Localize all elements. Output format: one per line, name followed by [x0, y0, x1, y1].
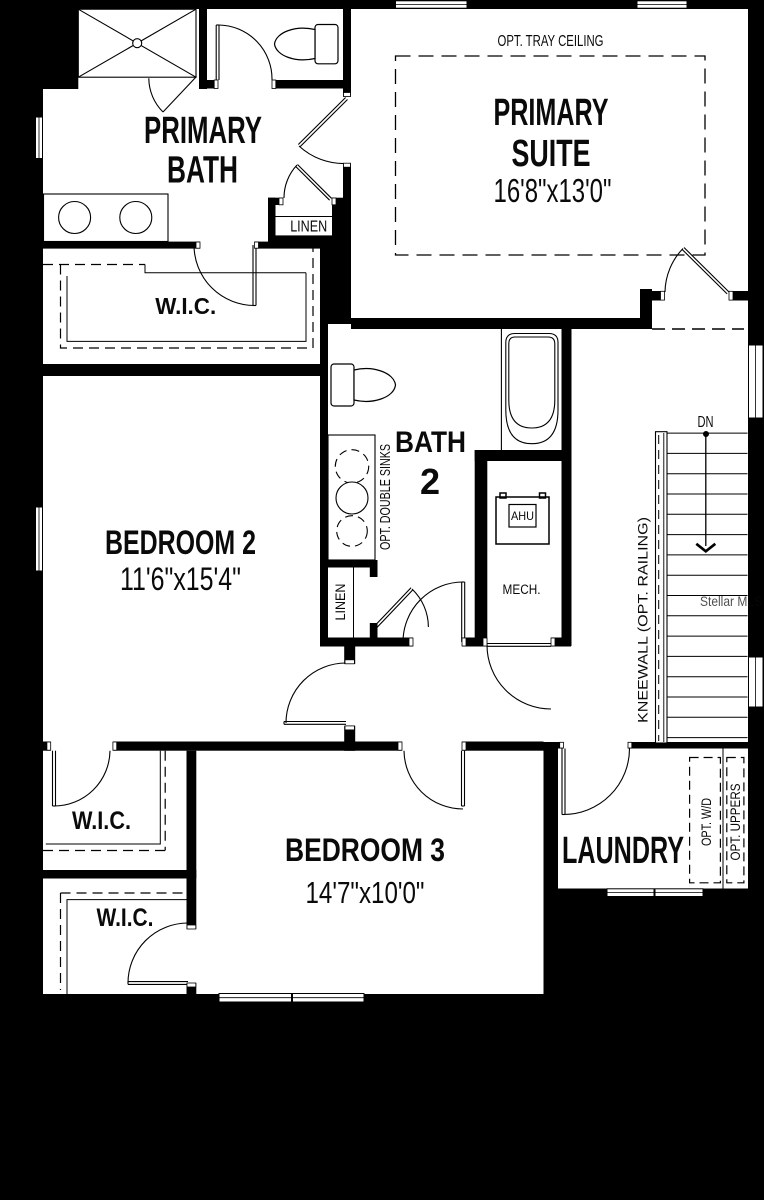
svg-text:OPT. W/D: OPT. W/D — [698, 798, 714, 846]
svg-text:W.I.C.: W.I.C. — [155, 293, 216, 319]
svg-text:LINEN: LINEN — [332, 584, 348, 621]
svg-text:Stellar MLS: Stellar MLS — [700, 593, 762, 609]
svg-text:BATH: BATH — [395, 426, 466, 459]
svg-text:KNEEWALL (OPT. RAILING): KNEEWALL (OPT. RAILING) — [636, 517, 651, 723]
svg-text:16'8"x13'0": 16'8"x13'0" — [494, 172, 612, 209]
svg-text:PRIMARY: PRIMARY — [144, 110, 262, 152]
svg-text:LAUNDRY: LAUNDRY — [562, 830, 684, 872]
svg-text:BATH: BATH — [167, 150, 238, 192]
svg-text:W.I.C.: W.I.C. — [97, 904, 154, 932]
svg-text:AHU: AHU — [511, 509, 534, 523]
svg-text:LINEN: LINEN — [290, 219, 327, 236]
svg-text:MECH.: MECH. — [503, 582, 541, 597]
svg-text:BEDROOM 2: BEDROOM 2 — [105, 524, 256, 562]
svg-text:OPT. DOUBLE SINKS: OPT. DOUBLE SINKS — [377, 444, 394, 550]
svg-text:14'7"x10'0": 14'7"x10'0" — [306, 875, 425, 910]
svg-text:BEDROOM 3: BEDROOM 3 — [285, 832, 445, 868]
svg-text:OPT. UPPERS: OPT. UPPERS — [727, 784, 743, 861]
svg-text:SUITE: SUITE — [512, 133, 591, 175]
svg-text:DN: DN — [698, 414, 714, 431]
svg-text:2: 2 — [420, 461, 440, 502]
svg-text:OPT. TRAY CEILING: OPT. TRAY CEILING — [498, 33, 604, 50]
svg-text:PRIMARY: PRIMARY — [494, 92, 609, 134]
svg-text:W.I.C.: W.I.C. — [72, 807, 131, 835]
svg-text:11'6"x15'4": 11'6"x15'4" — [120, 561, 241, 597]
